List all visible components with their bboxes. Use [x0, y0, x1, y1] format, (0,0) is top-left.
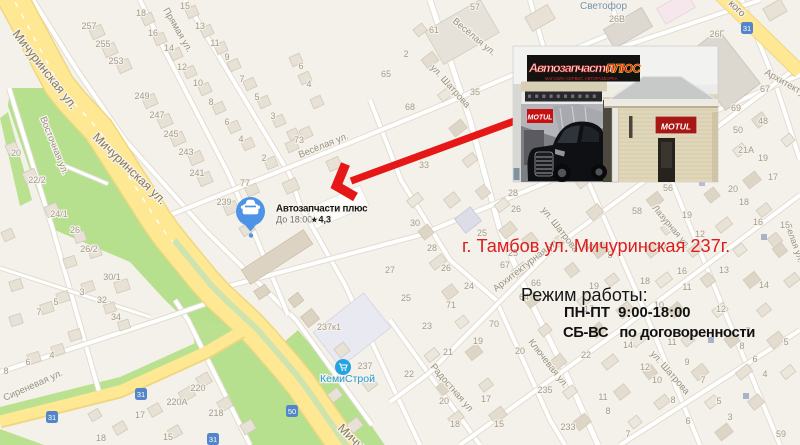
svg-text:15: 15	[180, 1, 190, 11]
svg-text:253: 253	[108, 56, 123, 66]
svg-text:25: 25	[401, 293, 411, 303]
svg-text:30: 30	[410, 218, 420, 228]
svg-text:Автозапчасти: Автозапчасти	[528, 61, 613, 75]
svg-text:257: 257	[81, 21, 96, 31]
svg-text:18: 18	[739, 197, 749, 207]
svg-text:6: 6	[298, 61, 303, 71]
svg-text:28: 28	[508, 188, 518, 198]
svg-text:МАГАЗИН·СЕРВИС·АВТОРАЗБОРКА: МАГАЗИН·СЕРВИС·АВТОРАЗБОРКА	[545, 76, 618, 81]
svg-text:28: 28	[427, 243, 437, 253]
svg-text:233: 233	[560, 422, 575, 432]
svg-text:16: 16	[677, 266, 687, 276]
svg-text:50: 50	[288, 407, 296, 416]
svg-text:14: 14	[759, 280, 769, 290]
svg-text:8: 8	[208, 97, 213, 107]
svg-text:61: 61	[429, 25, 439, 35]
svg-text:4: 4	[49, 350, 54, 360]
svg-text:14: 14	[164, 43, 174, 53]
svg-text:13: 13	[719, 265, 729, 275]
svg-text:16: 16	[148, 28, 158, 38]
svg-text:245: 245	[163, 129, 178, 139]
svg-text:22: 22	[404, 369, 414, 379]
svg-text:20: 20	[439, 396, 449, 406]
svg-text:27: 27	[385, 265, 395, 275]
svg-text:77: 77	[240, 178, 250, 188]
svg-text:12: 12	[177, 62, 187, 72]
svg-text:18: 18	[450, 419, 460, 429]
svg-text:3: 3	[270, 111, 275, 121]
svg-text:12: 12	[716, 304, 726, 314]
svg-text:5: 5	[783, 337, 788, 347]
svg-text:50: 50	[733, 125, 743, 135]
svg-text:237к1: 237к1	[317, 322, 341, 332]
svg-text:56: 56	[663, 183, 673, 193]
svg-text:30/1: 30/1	[103, 272, 121, 282]
svg-text:20: 20	[11, 148, 21, 158]
svg-text:10: 10	[652, 375, 662, 385]
svg-text:4: 4	[306, 79, 311, 89]
svg-text:67: 67	[500, 260, 510, 270]
svg-text:31: 31	[137, 390, 145, 399]
svg-text:15: 15	[494, 419, 504, 429]
svg-text:5: 5	[716, 396, 721, 406]
svg-text:241: 241	[189, 168, 204, 178]
svg-text:71: 71	[446, 300, 456, 310]
svg-text:15: 15	[163, 432, 173, 442]
svg-text:26Г: 26Г	[710, 29, 725, 39]
svg-text:31: 31	[743, 24, 751, 33]
svg-text:13: 13	[195, 21, 205, 31]
svg-text:23: 23	[422, 321, 432, 331]
svg-text:19: 19	[682, 210, 692, 220]
svg-text:65: 65	[381, 69, 391, 79]
svg-text:12: 12	[640, 362, 650, 372]
svg-text:КемиСтрой: КемиСтрой	[320, 373, 375, 385]
svg-text:4: 4	[238, 134, 243, 144]
svg-text:11: 11	[598, 392, 607, 402]
svg-text:2: 2	[261, 153, 266, 163]
svg-text:11: 11	[682, 282, 691, 292]
svg-text:34: 34	[111, 312, 121, 322]
svg-text:8: 8	[670, 395, 675, 405]
svg-text:17: 17	[135, 410, 145, 420]
svg-text:18: 18	[96, 433, 106, 443]
svg-text:ПЛЮС: ПЛЮС	[606, 62, 641, 76]
svg-text:MOTUL: MOTUL	[661, 122, 691, 132]
svg-text:26: 26	[441, 263, 451, 273]
svg-text:8: 8	[605, 406, 610, 416]
svg-text:4: 4	[762, 369, 767, 379]
svg-text:31: 31	[209, 435, 217, 444]
svg-text:6: 6	[685, 416, 690, 426]
svg-text:22: 22	[581, 350, 591, 360]
svg-text:11: 11	[210, 38, 219, 48]
svg-text:Автозапчасти плюс: Автозапчасти плюс	[276, 204, 368, 215]
svg-text:15: 15	[780, 220, 790, 230]
svg-text:20: 20	[728, 184, 738, 194]
svg-text:9: 9	[684, 357, 689, 367]
svg-text:5: 5	[254, 92, 259, 102]
svg-text:17: 17	[768, 172, 778, 182]
svg-text:7: 7	[36, 307, 41, 317]
svg-text:5: 5	[53, 297, 58, 307]
svg-text:73: 73	[294, 135, 304, 145]
svg-text:17: 17	[481, 394, 491, 404]
svg-text:До 18:00: До 18:00	[276, 215, 312, 225]
svg-text:255: 255	[95, 39, 110, 49]
svg-text:70: 70	[489, 319, 499, 329]
svg-text:59: 59	[776, 429, 786, 439]
svg-text:35: 35	[470, 87, 480, 97]
svg-text:21: 21	[443, 347, 453, 357]
svg-text:7: 7	[239, 74, 244, 84]
svg-text:14: 14	[623, 340, 633, 350]
svg-text:67: 67	[760, 84, 770, 94]
svg-text:249: 249	[134, 91, 149, 101]
svg-text:4,3: 4,3	[319, 215, 332, 225]
svg-text:22/2: 22/2	[28, 175, 46, 185]
svg-text:3: 3	[727, 412, 732, 422]
svg-text:9: 9	[224, 52, 229, 62]
svg-text:24/1: 24/1	[50, 209, 68, 219]
svg-text:6: 6	[25, 357, 30, 367]
svg-text:243: 243	[178, 147, 193, 157]
svg-text:19: 19	[473, 336, 483, 346]
svg-text:7: 7	[700, 375, 705, 385]
svg-text:19: 19	[758, 153, 768, 163]
svg-text:218: 218	[208, 408, 223, 418]
svg-text:18: 18	[136, 8, 146, 18]
svg-text:10: 10	[193, 78, 203, 88]
svg-text:26: 26	[511, 204, 521, 214]
svg-text:8: 8	[739, 341, 744, 351]
svg-text:57: 57	[470, 2, 480, 12]
svg-text:32: 32	[97, 295, 107, 305]
svg-text:8: 8	[3, 366, 8, 376]
svg-text:68: 68	[405, 102, 415, 112]
svg-text:31: 31	[48, 413, 56, 422]
svg-text:58: 58	[632, 206, 642, 216]
svg-text:33: 33	[419, 160, 429, 170]
svg-text:220: 220	[190, 383, 205, 393]
svg-text:220А: 220А	[166, 397, 187, 407]
svg-text:7: 7	[625, 429, 630, 439]
svg-text:26: 26	[70, 225, 80, 235]
svg-text:20: 20	[515, 346, 525, 356]
svg-text:★: ★	[311, 215, 319, 225]
svg-text:26В: 26В	[609, 14, 625, 24]
svg-text:247: 247	[149, 110, 164, 120]
svg-text:2: 2	[403, 49, 408, 59]
svg-text:MOTUL: MOTUL	[528, 115, 553, 122]
svg-text:6: 6	[752, 354, 757, 364]
svg-text:3: 3	[79, 287, 84, 297]
svg-text:69: 69	[731, 103, 741, 113]
svg-text:237: 237	[357, 361, 372, 371]
svg-text:239: 239	[216, 197, 231, 207]
svg-text:6: 6	[224, 117, 229, 127]
svg-text:48: 48	[758, 116, 768, 126]
svg-text:16: 16	[753, 217, 763, 227]
svg-text:235: 235	[537, 385, 552, 395]
svg-text:Светофор: Светофор	[580, 0, 627, 12]
svg-text:26/2: 26/2	[80, 244, 98, 254]
svg-text:21А: 21А	[738, 145, 754, 155]
svg-text:24: 24	[464, 281, 474, 291]
